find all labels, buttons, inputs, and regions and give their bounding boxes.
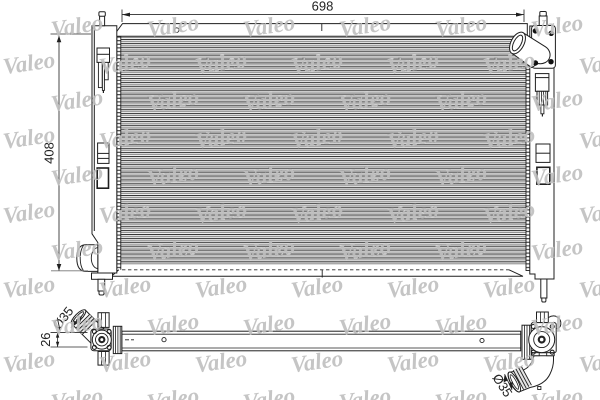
svg-text:26: 26 xyxy=(38,332,53,346)
svg-text:698: 698 xyxy=(312,0,334,13)
